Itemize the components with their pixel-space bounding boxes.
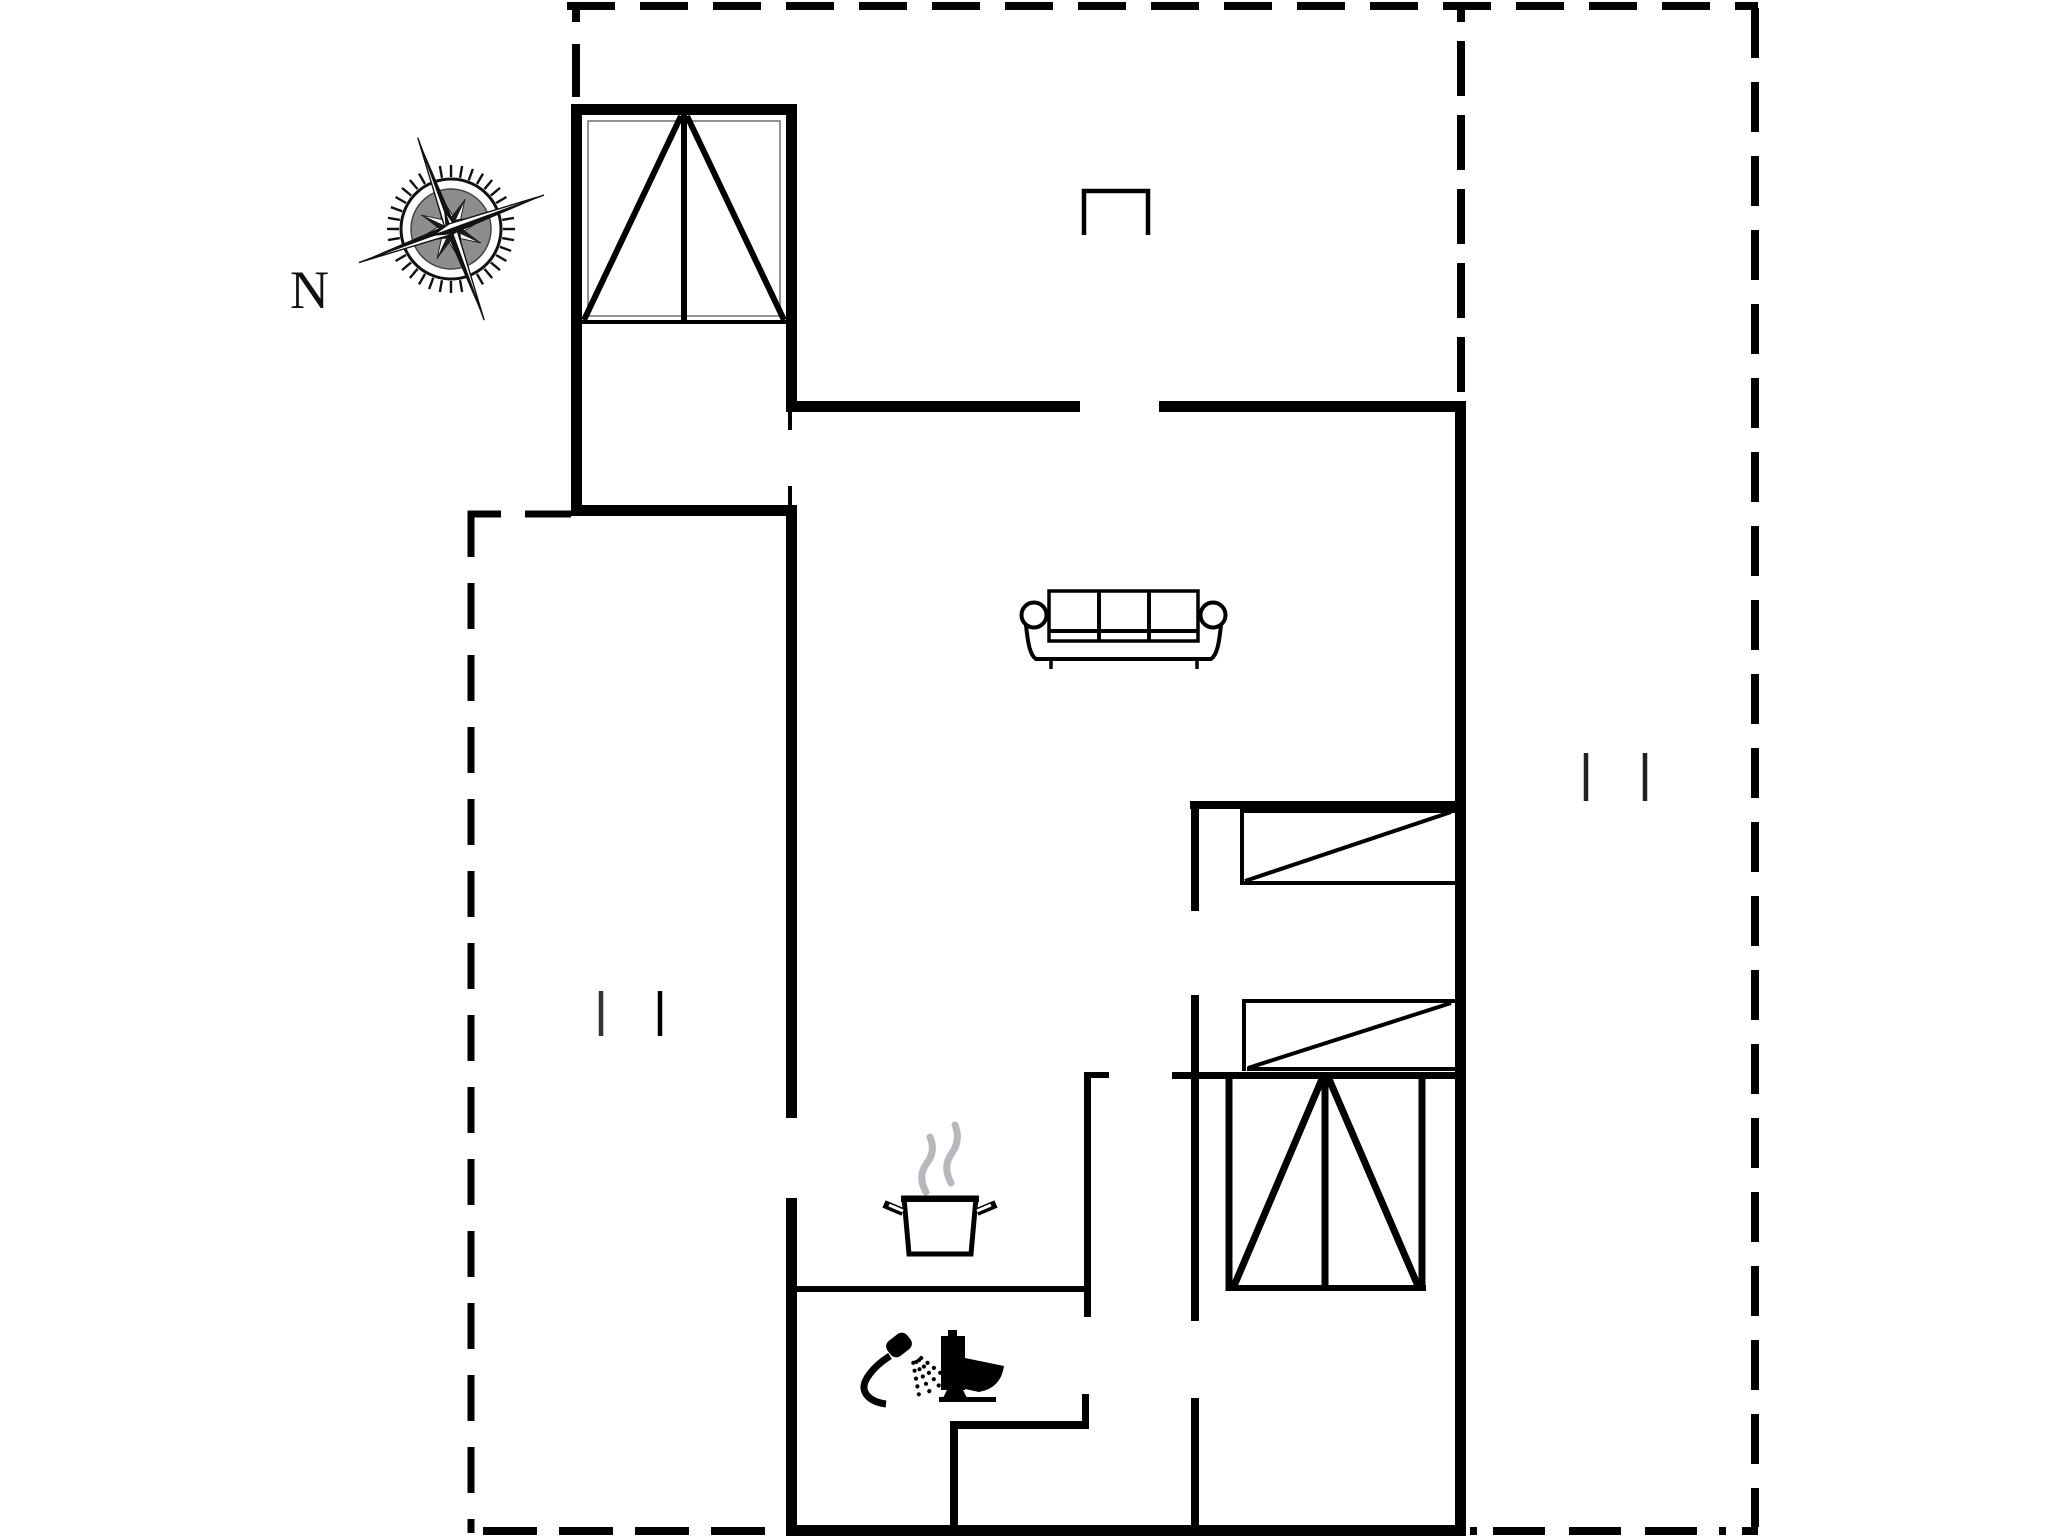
svg-text:N: N	[290, 260, 329, 320]
